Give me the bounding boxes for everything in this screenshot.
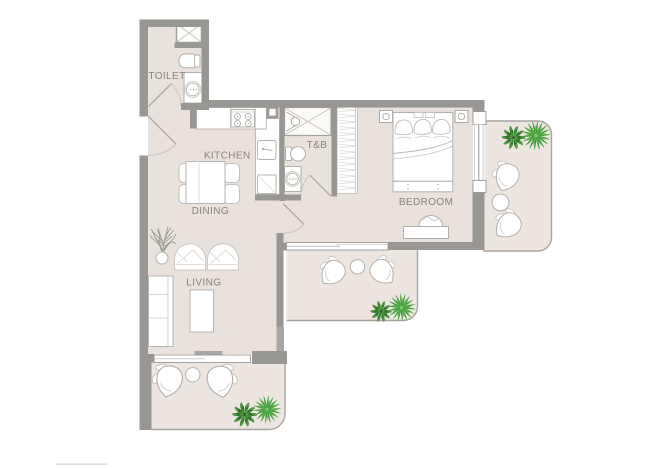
svg-text:DINING: DINING [192, 206, 229, 217]
svg-text:TOILET: TOILET [148, 71, 185, 82]
svg-text:BEDROOM: BEDROOM [399, 197, 453, 208]
svg-text:KITCHEN: KITCHEN [204, 151, 251, 162]
svg-text:T&B: T&B [307, 140, 328, 151]
svg-text:LIVING: LIVING [186, 278, 221, 289]
